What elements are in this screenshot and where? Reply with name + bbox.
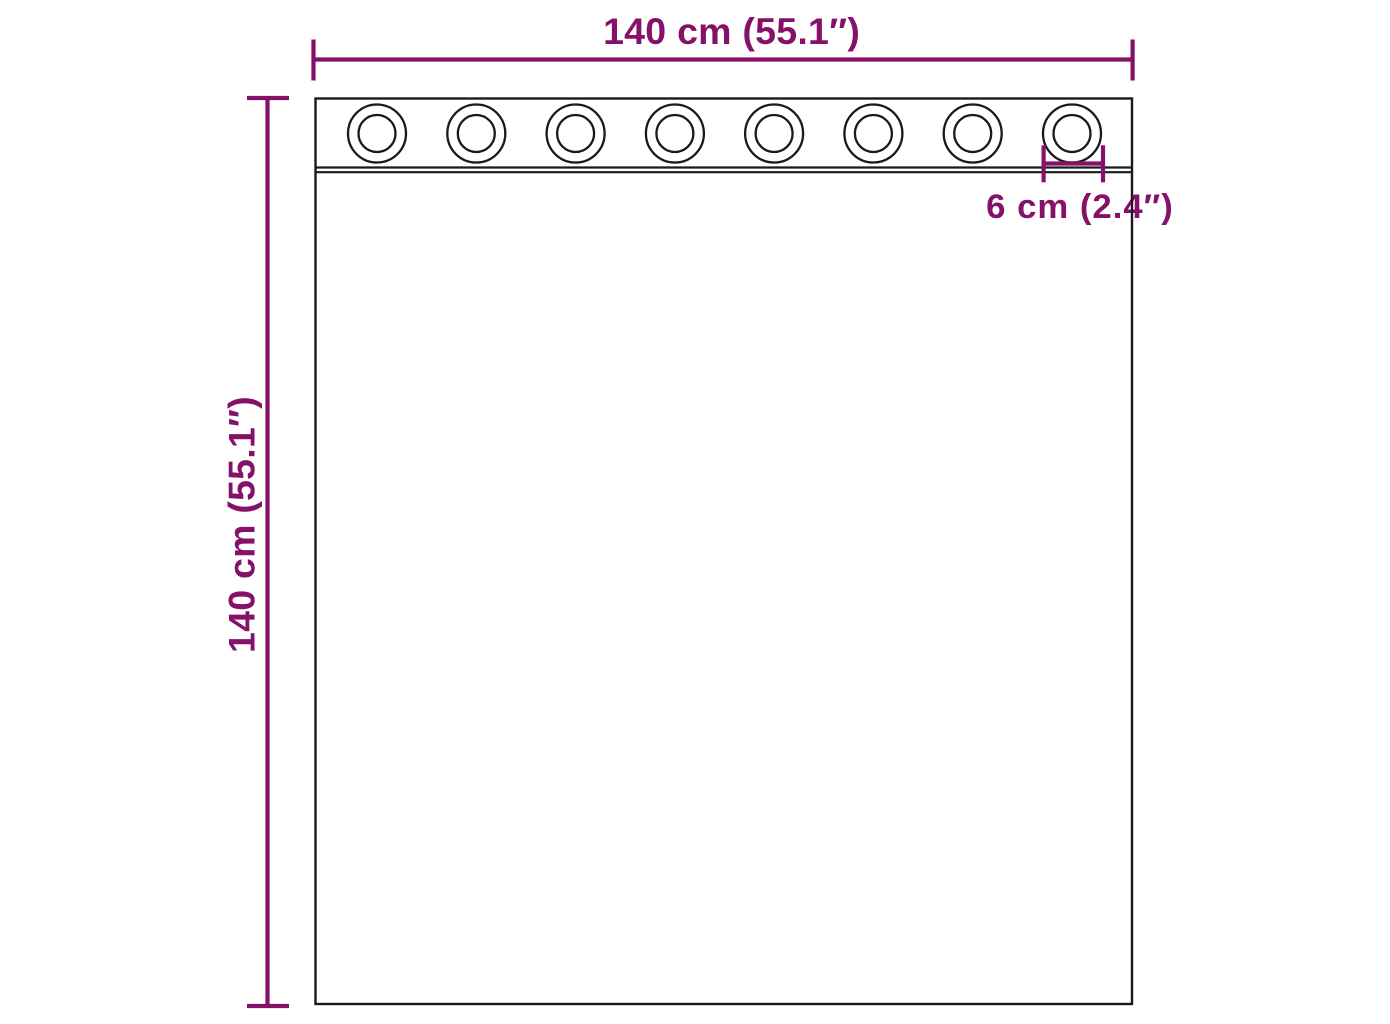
- svg-text:140 cm (55.1″): 140 cm (55.1″): [221, 396, 263, 653]
- svg-text:140 cm (55.1″): 140 cm (55.1″): [603, 10, 860, 52]
- svg-text:6 cm (2.4″): 6 cm (2.4″): [986, 188, 1174, 226]
